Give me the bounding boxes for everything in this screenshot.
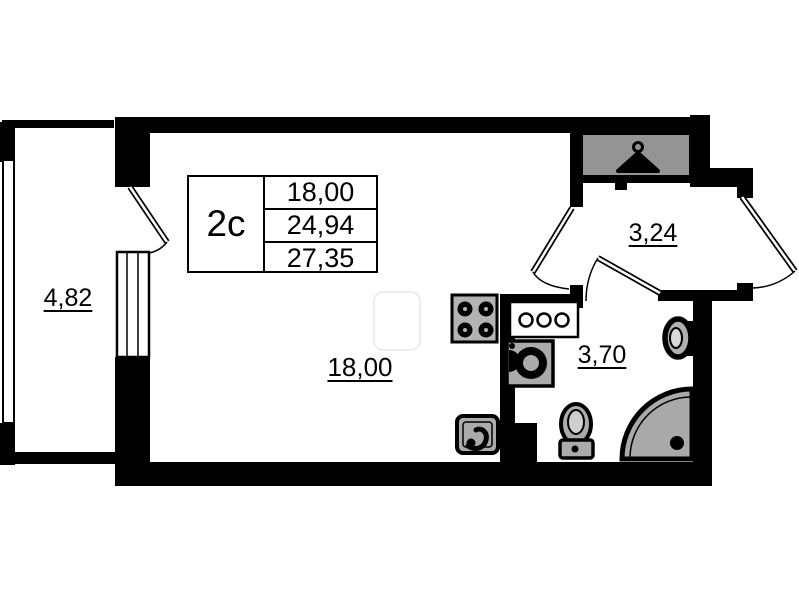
unit-areas: 18,00 24,94 27,35 <box>265 177 376 271</box>
floor-plan: 2c 18,00 24,94 27,35 4,82 18,00 3,24 3,7… <box>0 0 799 600</box>
shower-icon <box>622 389 692 459</box>
hallway-door <box>533 208 572 289</box>
bathroom-door-arc <box>586 258 598 301</box>
duct-block <box>515 423 537 462</box>
balcony-corner-bottom-left <box>0 423 15 465</box>
hallway-door-arc <box>533 272 569 289</box>
entrance-door-arc <box>753 271 795 288</box>
balcony-door <box>130 187 167 253</box>
stove-icon <box>452 295 497 342</box>
balcony-top-wall <box>2 120 114 128</box>
bathroom-door <box>586 258 660 301</box>
watermark <box>374 292 420 350</box>
bathroom-area-label: 3,70 <box>571 341 633 370</box>
unit-info-table: 2c 18,00 24,94 27,35 <box>187 175 378 273</box>
wall-left-lower <box>115 357 150 463</box>
floor-plan-drawing <box>0 0 799 600</box>
wardrobe <box>582 134 690 190</box>
balcony-bottom-wall <box>15 452 116 464</box>
balcony-area-label: 4,82 <box>38 284 98 313</box>
wall-right-bathroom <box>693 290 712 464</box>
washbasin-counter-icon <box>510 302 578 337</box>
balcony-glazing <box>3 160 14 423</box>
unit-type-label: 2c <box>189 177 265 271</box>
wardrobe-front-band <box>582 175 690 183</box>
entrance-door <box>742 197 795 288</box>
wall-top <box>117 117 710 133</box>
wall-left-pillar <box>115 117 150 187</box>
wardrobe-tick <box>615 183 627 190</box>
unit-area-main: 24,94 <box>265 210 376 243</box>
wall-entry-top <box>690 168 753 187</box>
unit-area-living: 18,00 <box>265 177 376 210</box>
unit-area-total: 27,35 <box>265 243 376 274</box>
washing-machine-icon <box>507 341 553 386</box>
kitchen-sink-icon <box>457 416 498 453</box>
living-area-label: 18,00 <box>315 352 405 383</box>
hallway-area-label: 3,24 <box>624 219 682 248</box>
window-left <box>117 252 149 357</box>
balcony-door-arc <box>149 242 167 253</box>
wall-bottom <box>115 462 712 486</box>
balcony-corner-top-left <box>0 122 15 162</box>
toilet-icon <box>560 404 593 458</box>
wall-sink-icon <box>665 319 695 357</box>
